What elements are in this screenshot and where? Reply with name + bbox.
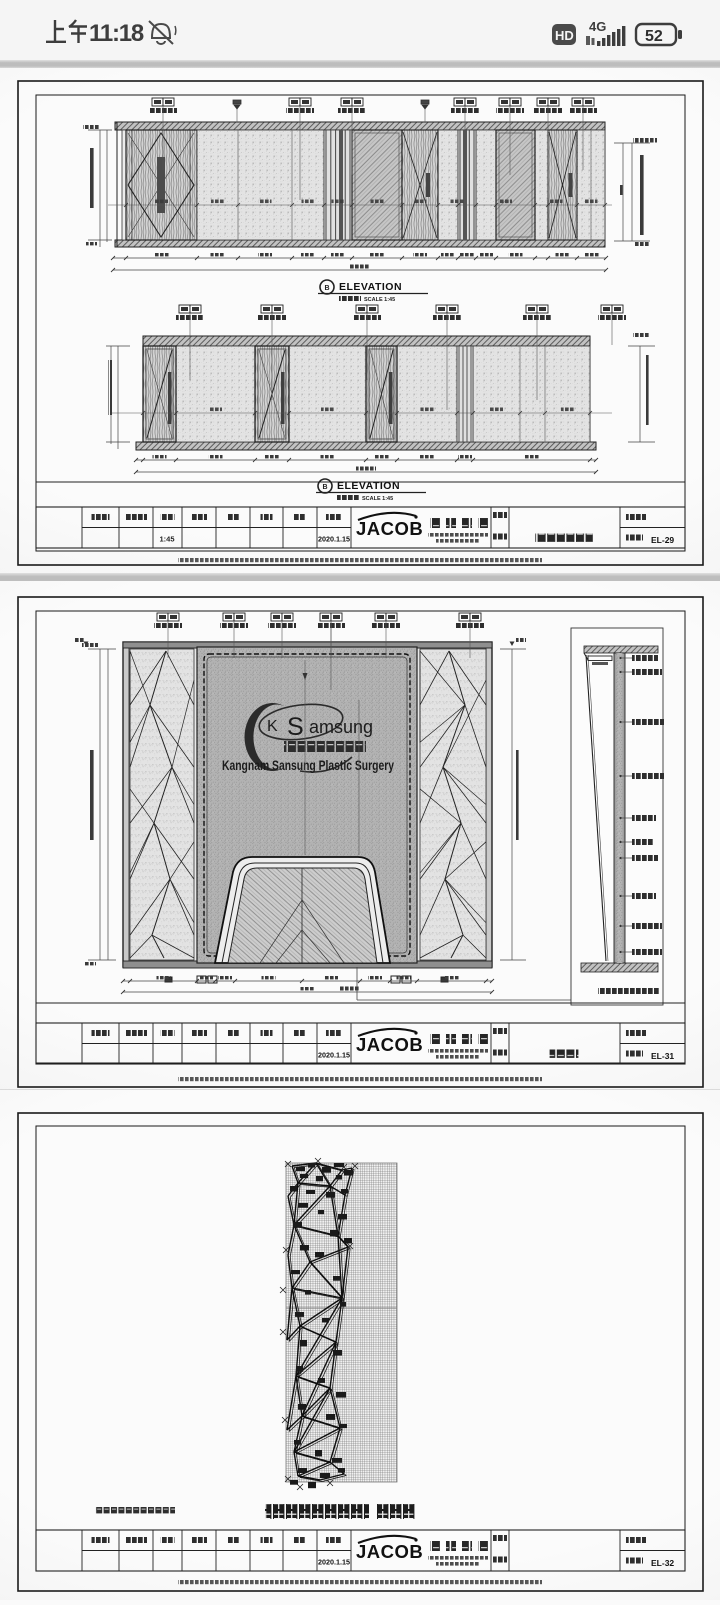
svg-text:amsung: amsung xyxy=(309,717,373,737)
svg-text:2020.1.15: 2020.1.15 xyxy=(318,1051,350,1060)
svg-text:S: S xyxy=(287,713,304,741)
svg-text:EL-31: EL-31 xyxy=(651,1051,674,1061)
svg-text:HD: HD xyxy=(555,28,574,43)
svg-text:B: B xyxy=(324,285,329,292)
svg-text:4G: 4G xyxy=(589,19,606,34)
svg-text:EL-29: EL-29 xyxy=(651,535,674,545)
svg-text:52: 52 xyxy=(645,28,663,45)
svg-text:1:45: 1:45 xyxy=(159,535,174,544)
svg-text:JACOB: JACOB xyxy=(356,1034,423,1055)
svg-text:2020.1.15: 2020.1.15 xyxy=(318,535,350,544)
svg-text:2020.1.15: 2020.1.15 xyxy=(318,1558,350,1567)
svg-text:SCALE 1:45: SCALE 1:45 xyxy=(364,297,395,303)
svg-text:K: K xyxy=(267,718,278,735)
svg-text:ELEVATION: ELEVATION xyxy=(339,281,402,293)
svg-text:SCALE 1:45: SCALE 1:45 xyxy=(362,496,393,502)
svg-text:JACOB: JACOB xyxy=(356,1541,423,1562)
svg-text:11:18: 11:18 xyxy=(89,20,144,47)
svg-text:Kangnam Sansung Plastic Surger: Kangnam Sansung Plastic Surgery xyxy=(222,757,394,773)
svg-text:B: B xyxy=(322,484,327,491)
svg-text:JACOB: JACOB xyxy=(356,518,423,539)
svg-text:EL-32: EL-32 xyxy=(651,1558,674,1568)
